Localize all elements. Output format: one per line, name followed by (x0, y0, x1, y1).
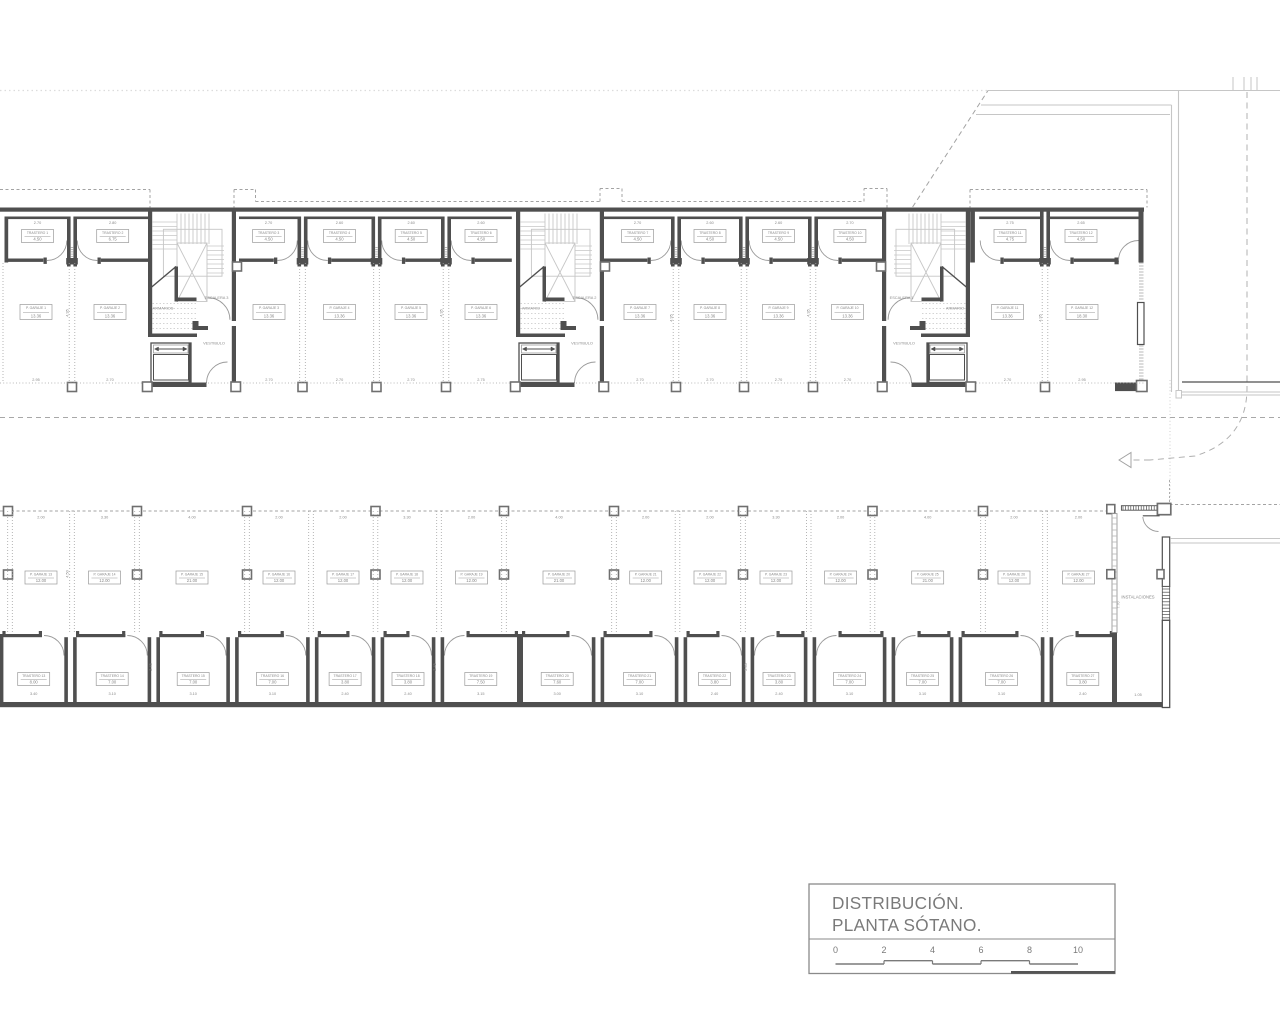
svg-text:2.95: 2.95 (32, 378, 39, 382)
svg-text:TRASTERO 23: TRASTERO 23 (767, 674, 790, 678)
svg-text:PLANTA SÓTANO.: PLANTA SÓTANO. (832, 915, 982, 935)
svg-text:2.00: 2.00 (37, 516, 44, 520)
svg-text:3.30: 3.30 (101, 516, 108, 520)
svg-text:TRASTERO 25: TRASTERO 25 (911, 674, 934, 678)
svg-text:P. GARAJE 10: P. GARAJE 10 (837, 306, 859, 310)
svg-text:VESTIBULO: VESTIBULO (893, 341, 915, 346)
svg-text:0: 0 (833, 945, 838, 955)
svg-text:2.75: 2.75 (477, 378, 484, 382)
svg-text:2.00: 2.00 (275, 516, 282, 520)
svg-text:7.00: 7.00 (918, 680, 927, 685)
svg-text:13.36: 13.36 (773, 314, 784, 319)
svg-text:TRASTERO 7: TRASTERO 7 (627, 231, 648, 235)
svg-text:3.10: 3.10 (269, 692, 276, 696)
svg-text:P. GARAJE 21: P. GARAJE 21 (635, 573, 657, 577)
svg-text:P. GARAJE 5: P. GARAJE 5 (401, 306, 421, 310)
svg-text:P. GARAJE 20: P. GARAJE 20 (548, 573, 570, 577)
svg-text:2: 2 (881, 945, 886, 955)
svg-text:12.00: 12.00 (1009, 578, 1020, 583)
svg-text:12.00: 12.00 (705, 578, 716, 583)
svg-text:3.10: 3.10 (109, 692, 116, 696)
svg-text:7.00: 7.00 (268, 680, 277, 685)
svg-text:TRASTERO 19: TRASTERO 19 (469, 674, 492, 678)
svg-text:4.50: 4.50 (706, 237, 715, 242)
svg-text:1.05: 1.05 (1134, 693, 1141, 697)
svg-text:TRASTERO 18: TRASTERO 18 (396, 674, 419, 678)
svg-text:2.00: 2.00 (642, 516, 649, 520)
svg-text:2.70: 2.70 (34, 221, 41, 225)
svg-text:TRASTERO 3: TRASTERO 3 (258, 231, 279, 235)
svg-text:12.00: 12.00 (402, 578, 413, 583)
svg-text:P. GARAJE 24: P. GARAJE 24 (830, 573, 852, 577)
svg-text:TRASTERO 27: TRASTERO 27 (1071, 674, 1094, 678)
svg-text:12.00: 12.00 (99, 578, 110, 583)
svg-text:ARMARIO: ARMARIO (946, 306, 964, 311)
svg-text:TRASTERO 11: TRASTERO 11 (999, 231, 1022, 235)
svg-text:4.95: 4.95 (66, 309, 70, 316)
svg-text:6.75: 6.75 (109, 237, 118, 242)
svg-text:3.10: 3.10 (998, 692, 1005, 696)
svg-text:ARMARIO: ARMARIO (522, 306, 540, 311)
svg-text:P. GARAJE 6: P. GARAJE 6 (471, 306, 491, 310)
svg-text:4.50: 4.50 (1077, 237, 1086, 242)
svg-text:2.70: 2.70 (844, 378, 851, 382)
svg-text:2.70: 2.70 (634, 221, 641, 225)
svg-text:4.00: 4.00 (924, 516, 931, 520)
svg-text:2.70: 2.70 (336, 378, 343, 382)
svg-text:P. GARAJE 19: P. GARAJE 19 (461, 573, 483, 577)
svg-text:P. GARAJE 2: P. GARAJE 2 (100, 306, 120, 310)
svg-text:P. GARAJE 8: P. GARAJE 8 (700, 306, 720, 310)
svg-text:3.80: 3.80 (775, 680, 784, 685)
svg-text:21.00: 21.00 (554, 578, 565, 583)
svg-text:12.00: 12.00 (274, 578, 285, 583)
svg-text:4.50: 4.50 (634, 237, 643, 242)
svg-text:2.70: 2.70 (265, 221, 272, 225)
svg-text:2.70: 2.70 (1004, 378, 1011, 382)
svg-text:12.00: 12.00 (338, 578, 349, 583)
svg-text:TRASTERO 12: TRASTERO 12 (1069, 231, 1092, 235)
svg-text:ARMARIOS: ARMARIOS (153, 306, 174, 311)
svg-text:13.36: 13.36 (334, 314, 345, 319)
svg-text:18.30: 18.30 (1077, 314, 1088, 319)
svg-text:P. GARAJE 11: P. GARAJE 11 (997, 306, 1019, 310)
svg-text:13.36: 13.36 (842, 314, 853, 319)
svg-text:TRASTERO 8: TRASTERO 8 (699, 231, 720, 235)
svg-text:13.36: 13.36 (635, 314, 646, 319)
svg-text:2.00: 2.00 (468, 516, 475, 520)
svg-text:2.80: 2.80 (109, 221, 116, 225)
svg-text:2.45: 2.45 (744, 663, 748, 670)
svg-text:2.70: 2.70 (636, 378, 643, 382)
svg-text:TRASTERO 9: TRASTERO 9 (768, 231, 789, 235)
svg-text:2.40: 2.40 (711, 692, 718, 696)
svg-text:2.60: 2.60 (408, 221, 415, 225)
svg-text:P. GARAJE 16: P. GARAJE 16 (268, 573, 290, 577)
svg-text:4.50: 4.50 (407, 237, 416, 242)
svg-text:ESCALERA 3: ESCALERA 3 (205, 295, 229, 300)
svg-text:P. GARAJE 14: P. GARAJE 14 (94, 573, 116, 577)
svg-text:12.00: 12.00 (640, 578, 651, 583)
svg-text:TRASTERO 14: TRASTERO 14 (101, 674, 124, 678)
svg-text:2.45: 2.45 (433, 663, 437, 670)
svg-text:4.50: 4.50 (477, 237, 486, 242)
svg-text:13.36: 13.36 (406, 314, 417, 319)
svg-text:2.65: 2.65 (1077, 221, 1084, 225)
svg-text:2.60: 2.60 (706, 221, 713, 225)
svg-text:TRASTERO 6: TRASTERO 6 (470, 231, 491, 235)
svg-text:12.00: 12.00 (835, 578, 846, 583)
svg-text:ESCALERA 2: ESCALERA 2 (573, 295, 597, 300)
svg-text:P. GARAJE 13: P. GARAJE 13 (30, 573, 52, 577)
svg-text:3.10: 3.10 (190, 692, 197, 696)
svg-text:2.60: 2.60 (336, 221, 343, 225)
svg-text:2.75: 2.75 (1006, 221, 1013, 225)
svg-text:ESCALERA 1: ESCALERA 1 (890, 295, 914, 300)
svg-text:P. GARAJE 26: P. GARAJE 26 (1003, 573, 1025, 577)
svg-text:7.00: 7.00 (635, 680, 644, 685)
svg-text:P. GARAJE 7: P. GARAJE 7 (630, 306, 650, 310)
svg-text:2.70: 2.70 (706, 378, 713, 382)
svg-text:3.80: 3.80 (1079, 680, 1088, 685)
svg-text:3.80: 3.80 (404, 680, 413, 685)
svg-text:2.00: 2.00 (1075, 516, 1082, 520)
svg-text:4.00: 4.00 (555, 516, 562, 520)
svg-text:2.70: 2.70 (846, 221, 853, 225)
svg-text:4: 4 (930, 945, 935, 955)
svg-text:2.70: 2.70 (265, 378, 272, 382)
svg-text:12.00: 12.00 (1073, 578, 1084, 583)
svg-text:7.50: 7.50 (477, 680, 486, 685)
svg-text:TRASTERO 5: TRASTERO 5 (401, 231, 422, 235)
svg-text:P. GARAJE 17: P. GARAJE 17 (332, 573, 354, 577)
svg-text:2.00: 2.00 (1010, 516, 1017, 520)
svg-text:TRASTERO 17: TRASTERO 17 (334, 674, 357, 678)
svg-text:7.00: 7.00 (108, 680, 117, 685)
svg-text:2.70: 2.70 (106, 378, 113, 382)
svg-text:3.80: 3.80 (710, 680, 719, 685)
svg-text:TRASTERO 15: TRASTERO 15 (182, 674, 205, 678)
svg-text:2.40: 2.40 (775, 692, 782, 696)
svg-text:2.95: 2.95 (1078, 378, 1085, 382)
svg-text:13.36: 13.36 (264, 314, 275, 319)
svg-text:TRASTERO 20: TRASTERO 20 (546, 674, 569, 678)
svg-text:P. GARAJE 22: P. GARAJE 22 (699, 573, 721, 577)
svg-text:4.95: 4.95 (807, 309, 811, 316)
svg-text:4.00: 4.00 (188, 516, 195, 520)
svg-text:2.45: 2.45 (149, 663, 153, 670)
svg-text:6: 6 (978, 945, 983, 955)
svg-text:7.00: 7.00 (845, 680, 854, 685)
svg-text:TRASTERO 22: TRASTERO 22 (703, 674, 726, 678)
svg-text:3.80: 3.80 (341, 680, 350, 685)
svg-text:13.36: 13.36 (105, 314, 116, 319)
svg-text:TRASTERO 21: TRASTERO 21 (628, 674, 651, 678)
svg-text:P. GARAJE 25: P. GARAJE 25 (917, 573, 939, 577)
svg-text:7.00: 7.00 (997, 680, 1006, 685)
svg-text:7.00: 7.00 (189, 680, 198, 685)
svg-text:21.00: 21.00 (922, 578, 933, 583)
svg-text:4.50: 4.50 (33, 237, 42, 242)
svg-text:7.70: 7.70 (1117, 602, 1121, 609)
svg-text:P. GARAJE 27: P. GARAJE 27 (1068, 573, 1090, 577)
svg-text:4.50: 4.50 (265, 237, 274, 242)
svg-text:4.50: 4.50 (846, 237, 855, 242)
svg-text:TRASTERO 16: TRASTERO 16 (261, 674, 284, 678)
svg-text:4.50: 4.50 (66, 570, 70, 577)
svg-text:3.30: 3.30 (772, 516, 779, 520)
svg-text:TRASTERO 13: TRASTERO 13 (22, 674, 45, 678)
svg-text:TRASTERO 4: TRASTERO 4 (329, 231, 350, 235)
svg-text:P. GARAJE 1: P. GARAJE 1 (26, 306, 46, 310)
svg-text:2.40: 2.40 (341, 692, 348, 696)
svg-text:TRASTERO 26: TRASTERO 26 (990, 674, 1013, 678)
svg-text:P. GARAJE 3: P. GARAJE 3 (259, 306, 279, 310)
svg-text:2.70: 2.70 (775, 378, 782, 382)
svg-text:2.40: 2.40 (1079, 692, 1086, 696)
svg-text:2.00: 2.00 (339, 516, 346, 520)
svg-text:10: 10 (1073, 945, 1083, 955)
svg-text:4.95: 4.95 (1039, 314, 1043, 321)
svg-text:4.75: 4.75 (1006, 237, 1015, 242)
svg-text:3.10: 3.10 (636, 692, 643, 696)
svg-text:3.10: 3.10 (846, 692, 853, 696)
svg-text:INSTALACIONES: INSTALACIONES (1121, 595, 1154, 600)
svg-text:P. GARAJE 9: P. GARAJE 9 (768, 306, 788, 310)
svg-text:8.00: 8.00 (30, 680, 39, 685)
svg-text:P. GARAJE 12: P. GARAJE 12 (1071, 306, 1093, 310)
svg-text:TRASTERO 10: TRASTERO 10 (838, 231, 861, 235)
svg-text:4.50: 4.50 (774, 237, 783, 242)
svg-text:13.36: 13.36 (1002, 314, 1013, 319)
svg-text:4.50: 4.50 (335, 237, 344, 242)
svg-text:TRASTERO 2: TRASTERO 2 (102, 231, 123, 235)
svg-text:VESTIBULO: VESTIBULO (571, 341, 593, 346)
svg-text:3.30: 3.30 (403, 516, 410, 520)
svg-text:TRASTERO 1: TRASTERO 1 (27, 231, 48, 235)
svg-text:3.40: 3.40 (30, 692, 37, 696)
svg-text:3.10: 3.10 (919, 692, 926, 696)
svg-text:P. GARAJE 4: P. GARAJE 4 (329, 306, 349, 310)
svg-text:13.36: 13.36 (705, 314, 716, 319)
svg-text:21.00: 21.00 (187, 578, 198, 583)
svg-text:12.00: 12.00 (771, 578, 782, 583)
svg-text:13.36: 13.36 (31, 314, 42, 319)
svg-text:2.00: 2.00 (837, 516, 844, 520)
svg-text:3.00: 3.00 (554, 692, 561, 696)
svg-text:2.60: 2.60 (775, 221, 782, 225)
svg-text:2.40: 2.40 (404, 692, 411, 696)
svg-text:TRASTERO 24: TRASTERO 24 (838, 674, 861, 678)
svg-text:12.00: 12.00 (36, 578, 47, 583)
svg-text:3.15: 3.15 (477, 692, 484, 696)
svg-text:P. GARAJE 23: P. GARAJE 23 (765, 573, 787, 577)
svg-text:7.60: 7.60 (553, 680, 562, 685)
svg-text:P. GARAJE 18: P. GARAJE 18 (396, 573, 418, 577)
svg-text:2.60: 2.60 (477, 221, 484, 225)
svg-text:2.00: 2.00 (706, 516, 713, 520)
svg-text:2.70: 2.70 (407, 378, 414, 382)
svg-text:VESTIBULO: VESTIBULO (203, 341, 225, 346)
svg-text:4.95: 4.95 (670, 314, 674, 321)
svg-text:4.95: 4.95 (440, 309, 444, 316)
svg-text:8: 8 (1027, 945, 1032, 955)
svg-text:12.00: 12.00 (466, 578, 477, 583)
svg-text:DISTRIBUCIÓN.: DISTRIBUCIÓN. (832, 893, 964, 913)
svg-text:13.36: 13.36 (476, 314, 487, 319)
svg-text:P. GARAJE 15: P. GARAJE 15 (181, 573, 203, 577)
